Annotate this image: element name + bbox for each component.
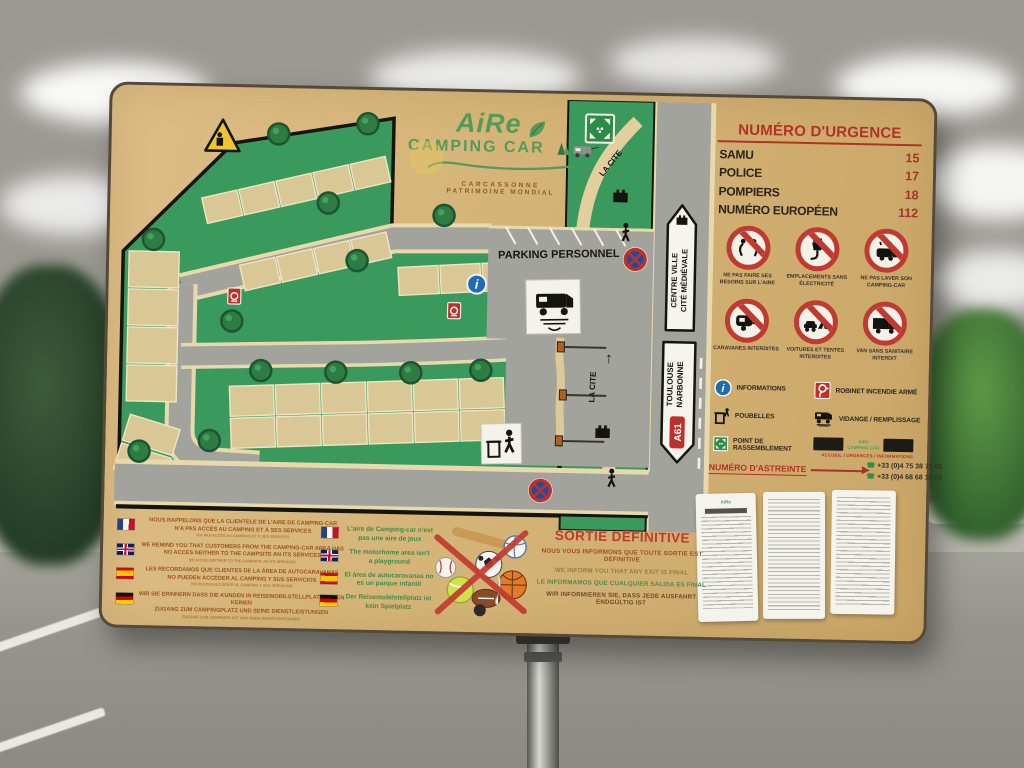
prohibition-caption: EMPLACEMENTS SANS ÉLECTRICITÉ	[784, 274, 850, 289]
notice-block-fr: L'aire de Camping-car n'est pas une aire…	[321, 525, 437, 545]
no-van-icon	[863, 301, 908, 346]
notice-block-en: The motorhome area isn't a playground	[321, 548, 437, 568]
prohibition-caption: VAN SANS SANITAIRE INTERDIT	[851, 348, 917, 363]
notice-block-es: LES RECORDAMOS QUE CLIENTES DE LA ÁREA D…	[116, 566, 346, 590]
emergency-title: NUMÉRO D'URGENCE	[718, 121, 922, 146]
flag-spain-icon	[116, 568, 133, 579]
flag-uk-icon	[117, 543, 134, 554]
service-station-icon	[814, 410, 834, 426]
phone-number: +33 (0)4 68 68 10 00	[877, 474, 942, 482]
emergency-row: SAMU 15	[717, 147, 921, 165]
pole-bracket	[524, 652, 562, 662]
no-electricity-icon	[795, 227, 840, 272]
no-caravan-icon	[724, 298, 769, 343]
prohibition-caption: NE PAS FAIRE SES BESOINS SUR L'AIRE	[714, 272, 780, 287]
prohibition: NE PAS FAIRE SES BESOINS SUR L'AIRE	[714, 225, 781, 287]
logo-swoosh	[426, 160, 576, 172]
emergency-label: POLICE	[719, 165, 762, 180]
phone-row: ☎+33 (0)4 75 38 71 00	[866, 462, 942, 471]
camping-car-sign-panel: PARKING PERSONNEL i	[98, 81, 937, 644]
exit-notice-line-es: LE INFORMAMOS QUE CUALQUIER SALIDA ES FI…	[532, 578, 710, 589]
exit-notice-line-fr: NOUS VOUS INFORMONS QUE TOUTE SORTIE EST…	[533, 547, 711, 565]
prohibition: CARAVANES INTERDITES	[713, 298, 780, 360]
trash-icon	[714, 407, 730, 424]
partner-photo	[883, 439, 913, 453]
legend-item: POINT DE RASSEMBLEMENT	[713, 435, 811, 454]
playground-notice: L'aire de Camping-car n'est pas une aire…	[320, 525, 438, 619]
svg-text:CENTRE VILLE: CENTRE VILLE	[669, 253, 679, 308]
service-station-map-icon	[526, 279, 581, 334]
flag-spain-icon	[320, 572, 337, 583]
notice-line: es un parque infantil	[341, 580, 436, 591]
warning-triangle-icon	[205, 119, 240, 151]
emergency-number: 112	[898, 206, 918, 220]
prohibition: EMPLACEMENTS SANS ÉLECTRICITÉ	[784, 227, 851, 289]
cloud	[610, 38, 780, 86]
direction-sign-toulouse: TOULOUSE NARBONNE A61	[661, 342, 696, 463]
no-games-illustration	[432, 525, 530, 619]
notice-block-es: El área de autocaravanas no es un parque…	[320, 570, 436, 590]
emergency-number: 17	[905, 169, 919, 183]
legend-item: POUBELLES	[714, 407, 812, 426]
logo-title: AiRe	[456, 108, 522, 139]
legend-label: INFORMATIONS	[736, 385, 785, 393]
flag-france-icon	[117, 519, 134, 530]
emergency-number: 18	[905, 188, 919, 202]
svg-text:A61: A61	[673, 423, 684, 442]
phone-row: ☎+33 (0)4 68 68 10 00	[866, 474, 942, 483]
rules-document	[763, 492, 825, 619]
direction-sign-centre-ville: CENTRE VILLE CITÉ MÉDIÉVALE	[666, 205, 697, 331]
partner-photo	[813, 437, 843, 451]
info-icon: i	[714, 379, 731, 396]
emergency-row: POLICE 17	[717, 165, 921, 183]
mini-logo: AiReCAMPING CAR	[847, 439, 879, 450]
parking-personnel-label: PARKING PERSONNEL	[498, 248, 620, 262]
arrow-up-icon: ↑	[605, 350, 613, 367]
no-access-notice: NOUS RAPPELONS QUE LA CLIENTÈLE DE L'AIR…	[115, 517, 347, 628]
exit-notice: SORTIE DÉFINITIVE NOUS VOUS INFORMONS QU…	[532, 527, 712, 608]
prohibition-caption: CARAVANES INTERDITES	[713, 345, 779, 353]
svg-text:TOULOUSE: TOULOUSE	[665, 361, 675, 406]
emergency-numbers-panel: NUMÉRO D'URGENCE SAMU 15 POLICE 17 POMPI…	[716, 121, 922, 220]
assembly-point-icon	[713, 435, 728, 452]
legend-item: ROBINET INCENDIE ARMÉ	[814, 381, 922, 401]
notice-block-fr: NOUS RAPPELONS QUE LA CLIENTÈLE DE L'AIR…	[117, 517, 347, 541]
prohibition: VOITURES ET TENTES INTERDITES	[782, 299, 849, 361]
astreinte-title: NUMÉRO D'ASTREINTE	[709, 462, 807, 476]
prohibition: VAN SANS SANITAIRE INTERDIT	[851, 301, 918, 363]
legend-column-2: ROBINET INCENDIE ARMÉ VIDANGE / REMPLISS…	[813, 381, 923, 459]
exit-notice-line-en: WE INFORM YOU THAT ANY EXIT IS FINAL	[533, 566, 711, 577]
no-parking-icon	[623, 248, 646, 271]
svg-text:CITÉ MÉDIÉVALE: CITÉ MÉDIÉVALE	[679, 249, 689, 312]
fire-hose-map-icon	[228, 288, 241, 304]
legend-label: ROBINET INCENDIE ARMÉ	[835, 387, 917, 396]
notice-block-de: Der Reisemobilstellplatz ist kein Spielp…	[320, 593, 436, 613]
prohibition: NE PAS LAVER SON CAMPING-CAR	[853, 228, 920, 290]
astreinte-block: NUMÉRO D'ASTREINTE ☎+33 (0)4 75 38 71 00…	[709, 457, 921, 484]
trash-point-map-icon	[481, 423, 522, 464]
flag-uk-icon	[321, 550, 338, 561]
emergency-label: SAMU	[719, 147, 753, 162]
svg-text:i: i	[475, 277, 479, 292]
legend-item: VIDANGE / REMPLISSAGE	[814, 410, 922, 428]
legend-label: VIDANGE / REMPLISSAGE	[839, 415, 921, 424]
info-map-icon: i	[467, 274, 486, 293]
legend-label: POINT DE RASSEMBLEMENT	[733, 437, 812, 453]
emergency-label: POMPIERS	[719, 184, 780, 199]
logo-sun-accent	[409, 141, 444, 176]
svg-text:NARBONNE: NARBONNE	[675, 361, 685, 408]
la-cite-label: LA CITE	[587, 371, 598, 403]
phone-number: +33 (0)4 75 38 71 00	[877, 463, 942, 471]
emergency-number: 15	[905, 151, 919, 165]
no-parking-icon	[529, 479, 552, 502]
notice-block-en: WE REMIND YOU THAT CUSTOMERS FROM THE CA…	[117, 541, 347, 565]
emergency-row: NUMÉRO EUROPÉEN 112	[716, 202, 920, 220]
astreinte-phones: ☎+33 (0)4 75 38 71 00 ☎+33 (0)4 68 68 10…	[866, 460, 942, 484]
flag-france-icon	[321, 527, 338, 538]
document-header: AiRe	[701, 500, 751, 506]
fire-hose-icon	[814, 381, 830, 399]
no-toilet-icon	[726, 225, 771, 270]
no-car-tent-icon	[793, 300, 838, 345]
legend-label: POUBELLES	[735, 413, 775, 421]
emergency-label: NUMÉRO EUROPÉEN	[718, 202, 838, 218]
flag-germany-icon	[116, 593, 133, 604]
prohibition-caption: VOITURES ET TENTES INTERDITES	[782, 346, 848, 361]
fire-hose-map-icon	[447, 303, 460, 319]
exit-notice-line-de: WIR INFORMIEREN SIE, DASS JEDE AUSFAHRT …	[532, 590, 710, 608]
flag-germany-icon	[320, 595, 337, 606]
arrow-right-icon	[810, 469, 862, 473]
document-text-lines	[768, 499, 820, 611]
notice-line: kein Spielplatz	[341, 603, 436, 614]
rules-document	[830, 490, 896, 615]
notice-block-de: WIR SIE ERINNERN DASS DIE KUNDEN IN REIS…	[116, 591, 347, 623]
astreinte-fine-print: ACCUEIL / URGENCES / INFORMATIONS	[813, 452, 921, 459]
logo: AiRe CAMPING CAR CARCASSONNE PATRIMOINE …	[401, 107, 603, 198]
leaf-icon	[526, 118, 548, 140]
exit-notice-title: SORTIE DÉFINITIVE	[533, 527, 711, 546]
legend-item: i INFORMATIONS	[714, 379, 812, 398]
prohibition-signs: NE PAS FAIRE SES BESOINS SUR L'AIRE EMPL…	[711, 225, 922, 363]
document-text-lines	[835, 497, 891, 608]
no-washing-icon	[864, 228, 909, 273]
camper-trees-doodle	[551, 139, 595, 160]
legend-column-1: i INFORMATIONS POUBELLES POINT DE RASSEM…	[713, 379, 813, 465]
document-title-bar	[705, 508, 747, 514]
partner-badges: AiReCAMPING CAR	[813, 437, 921, 452]
emergency-row: POMPIERS 18	[717, 184, 921, 202]
prohibition-caption: NE PAS LAVER SON CAMPING-CAR	[853, 275, 919, 290]
